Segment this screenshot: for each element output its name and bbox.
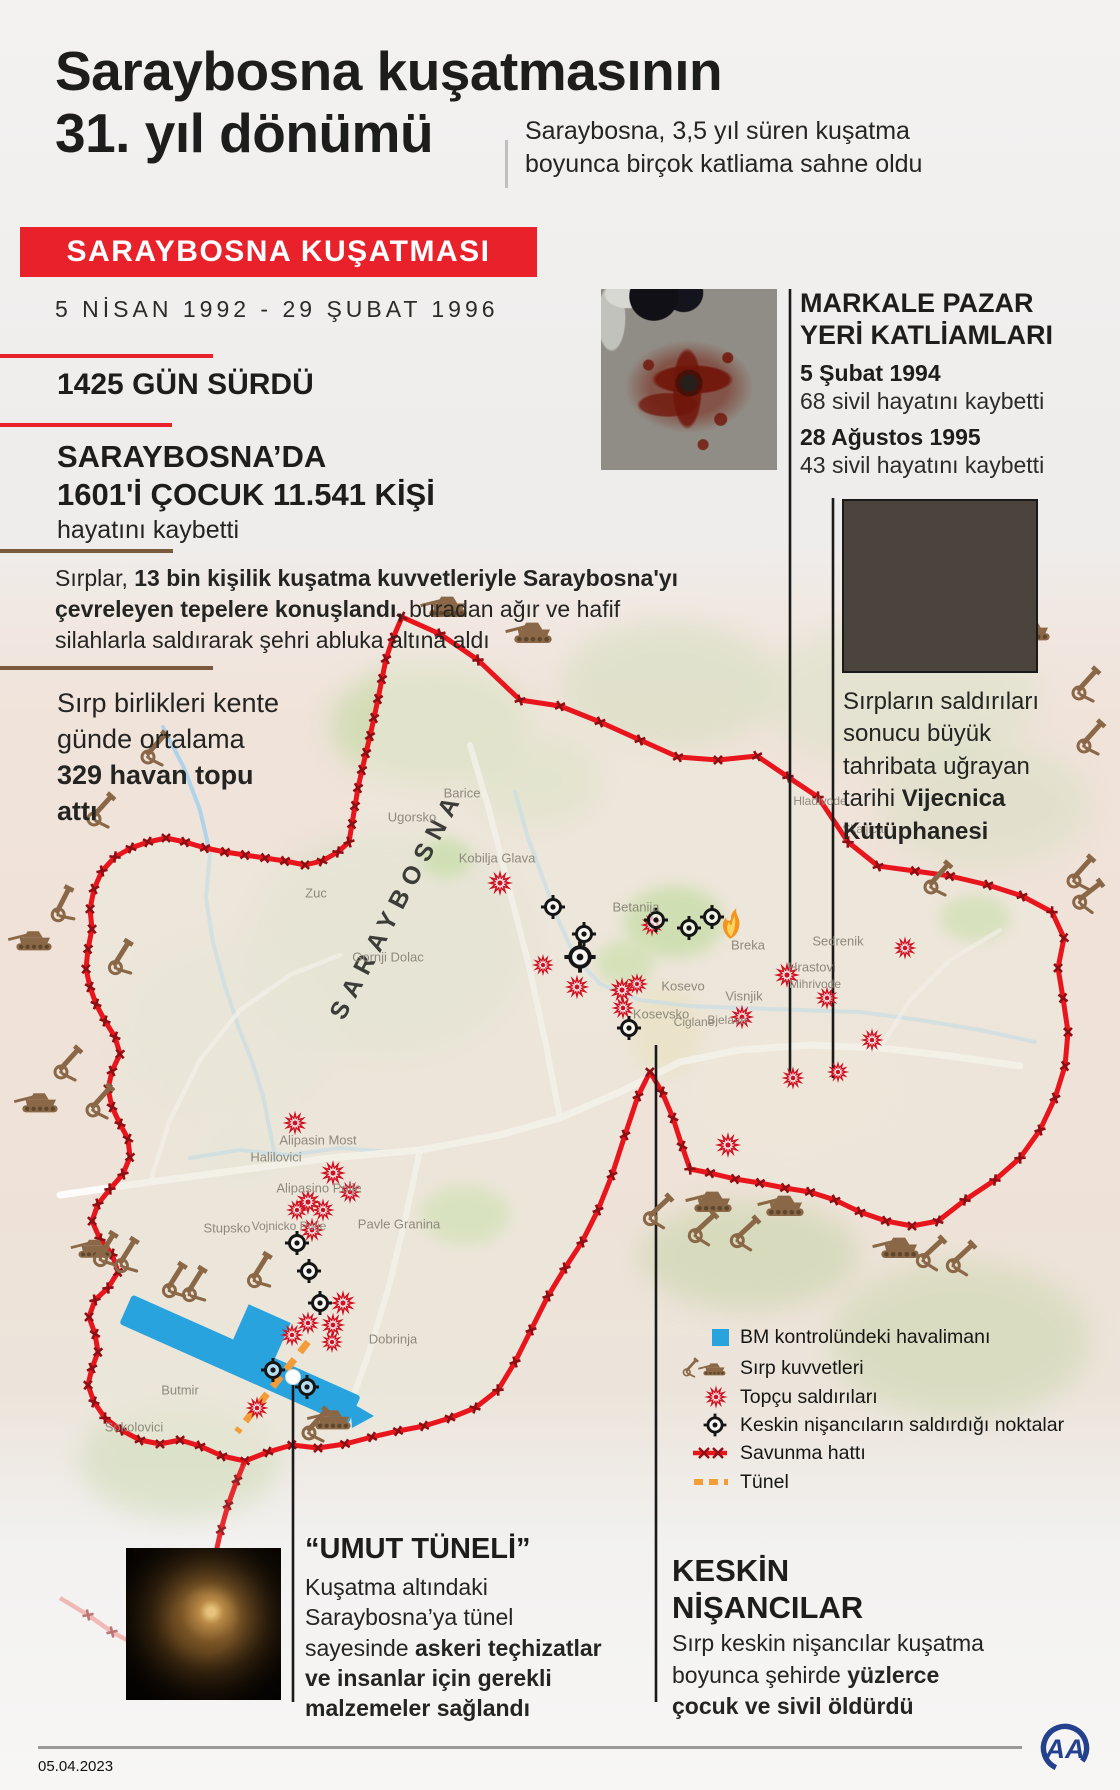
cannon-icon bbox=[947, 1238, 978, 1276]
legend-label: Savunma hattı bbox=[740, 1442, 866, 1465]
daily-shelling-bold: 329 havan topu attı bbox=[57, 760, 254, 826]
legend-label: BM kontrolündeki havalimanı bbox=[740, 1326, 990, 1349]
duration-stat: 1425 GÜN SÜRDÜ bbox=[57, 368, 314, 402]
cannon-icon bbox=[644, 1191, 675, 1229]
legend-label: Sırp kuvvetleri bbox=[740, 1357, 864, 1380]
divider-rule bbox=[0, 354, 213, 358]
markale-title-line1: MARKALE PAZAR bbox=[800, 288, 1053, 320]
sniper-section-body: Sırp keskin nişancılar kuşatma boyunca ş… bbox=[672, 1628, 1012, 1723]
map-place-label: Visnjik bbox=[725, 989, 762, 1004]
map-place-label: Halilovici bbox=[250, 1150, 301, 1165]
map-place-label: Vojnicko Polje bbox=[252, 1219, 327, 1233]
legend-row-snipers: Keskin nişancıların saldırdığı noktalar bbox=[678, 1410, 1064, 1440]
legend-label: Topçu saldırıları bbox=[740, 1386, 878, 1409]
tank-icon bbox=[14, 1093, 58, 1112]
markale-massacre-photo bbox=[601, 289, 777, 470]
cannon-icon bbox=[917, 1233, 948, 1271]
markale-event-toll: 43 sivil hayatını kaybetti bbox=[800, 452, 1044, 479]
cannon-icon bbox=[1072, 874, 1106, 914]
tunnel-midpoint-dot bbox=[286, 1370, 301, 1385]
legend-row-serb-forces: Sırp kuvvetleri bbox=[678, 1353, 864, 1383]
vijecnica-caption: Sırpların saldırıları sonucu büyük tahri… bbox=[843, 686, 1053, 848]
airport-square-icon bbox=[678, 1329, 740, 1346]
tank-icon bbox=[757, 1196, 803, 1216]
map-place-label: Kosevo bbox=[661, 979, 704, 994]
casualties-stat: SARAYBOSNA’DA 1601'İ ÇOCUK 11.541 KİŞİ bbox=[57, 438, 435, 514]
map-place-label: Butmir bbox=[161, 1383, 199, 1398]
footer-date: 05.04.2023 bbox=[38, 1758, 113, 1775]
subtitle-divider bbox=[505, 140, 508, 188]
legend-row-tunnel: Tünel bbox=[678, 1467, 789, 1497]
cannon-icon bbox=[55, 1044, 83, 1080]
tunnel-dash-icon bbox=[678, 1477, 740, 1487]
markale-title: MARKALE PAZAR YERİ KATLİAMLARI bbox=[800, 288, 1053, 352]
map-place-label: Ugorsko bbox=[388, 810, 436, 825]
map-place-label: Alipasin Most bbox=[279, 1133, 356, 1148]
divider-rule bbox=[0, 423, 172, 427]
map-place-label: Kobilja Glava bbox=[459, 851, 536, 866]
daily-shelling-stat: Sırp birlikleri kente günde ortalama 329… bbox=[57, 686, 287, 830]
legend-row-artillery: Topçu saldırıları bbox=[678, 1382, 878, 1412]
casualties-suffix: hayatını kaybetti bbox=[57, 514, 239, 548]
casualties-line1: SARAYBOSNA’DA bbox=[57, 438, 435, 476]
artillery-burst-icon bbox=[678, 1384, 740, 1410]
footer-divider bbox=[38, 1746, 1022, 1749]
map-place-label: Mihrivode bbox=[789, 977, 841, 991]
tank-icon bbox=[685, 1192, 731, 1212]
map-place-label: Hladivode bbox=[793, 794, 846, 808]
map-place-label: Betanija bbox=[613, 900, 660, 915]
divider-rule bbox=[0, 666, 213, 670]
defense-line-branch bbox=[216, 1461, 245, 1552]
sniper-title-line2: NİŞANCILAR bbox=[672, 1590, 863, 1627]
siege-date-range: 5 NİSAN 1992 - 29 ŞUBAT 1996 bbox=[55, 296, 499, 323]
map-place-label: Bjelave bbox=[707, 1013, 746, 1027]
divider-rule bbox=[0, 549, 173, 553]
paragraph-pre: Sırplar, bbox=[55, 565, 134, 591]
legend-row-airport: BM kontrolündeki havalimanı bbox=[678, 1322, 990, 1352]
sniper-crosshair-icon bbox=[678, 1411, 740, 1439]
cannon-icon bbox=[689, 1208, 720, 1246]
daily-shelling-pre: Sırp birlikleri kente günde ortalama bbox=[57, 688, 279, 754]
sniper-section-title: KESKİN NİŞANCILAR bbox=[672, 1553, 863, 1626]
map-place-label: Alipasino Polje bbox=[276, 1181, 361, 1196]
siege-banner: SARAYBOSNA KUŞATMASI bbox=[20, 227, 537, 277]
defense-line-icon bbox=[678, 1445, 740, 1461]
casualties-line2: 1601'İ ÇOCUK 11.541 KİŞİ bbox=[57, 476, 435, 514]
vijecnica-burning-photo bbox=[842, 499, 1038, 673]
cannon-icon bbox=[1073, 665, 1101, 701]
tunnel-section-body: Kuşatma altındaki Saraybosna’ya tünel sa… bbox=[305, 1572, 620, 1724]
logo-text: AA bbox=[1045, 1734, 1085, 1764]
siege-paragraph: Sırplar, 13 bin kişilik kuşatma kuvvetle… bbox=[55, 563, 705, 656]
tank-cannon-icon bbox=[678, 1357, 740, 1379]
defense-line-faded bbox=[60, 1598, 134, 1644]
cannon-icon bbox=[731, 1213, 762, 1251]
map-place-label: Barice bbox=[444, 786, 481, 801]
markale-event-date: 5 Şubat 1994 bbox=[800, 360, 941, 387]
legend-label: Tünel bbox=[740, 1471, 789, 1494]
map-place-label: Gornji Dolac bbox=[352, 950, 424, 965]
map-place-label: Pavle Granina bbox=[358, 1217, 440, 1232]
cannon-icon bbox=[1078, 718, 1106, 754]
tunnel-photo bbox=[126, 1548, 281, 1700]
map-place-label: Breka bbox=[731, 938, 765, 953]
map-place-label: Dobrinja bbox=[369, 1332, 417, 1347]
sniper-title-line1: KESKİN bbox=[672, 1553, 863, 1590]
map-place-label: Sokolovici bbox=[105, 1420, 164, 1435]
page-title-line1: Saraybosna kuşatmasının bbox=[55, 40, 722, 102]
legend-row-defense: Savunma hattı bbox=[678, 1438, 866, 1468]
legend-label: Keskin nişancıların saldırdığı noktalar bbox=[740, 1414, 1064, 1437]
markale-title-line2: YERİ KATLİAMLARI bbox=[800, 320, 1053, 352]
markale-event-toll: 68 sivil hayatını kaybetti bbox=[800, 388, 1044, 415]
page-subtitle: Saraybosna, 3,5 yıl süren kuşatma boyunc… bbox=[525, 115, 925, 181]
map-place-label: Sedrenik bbox=[812, 934, 863, 949]
cannon-icon bbox=[45, 882, 82, 924]
map-place-label: Stupsko bbox=[204, 1221, 251, 1236]
anadolu-agency-logo: AA bbox=[1038, 1720, 1092, 1776]
tunnel-section-title: “UMUT TÜNELİ” bbox=[305, 1533, 531, 1566]
markale-event-date: 28 Ağustos 1995 bbox=[800, 424, 981, 451]
map-place-label: Hrastovi bbox=[788, 960, 836, 975]
map-place-label: Zuc bbox=[305, 886, 327, 901]
tank-icon bbox=[8, 931, 52, 950]
tank-icon bbox=[872, 1238, 918, 1258]
cannon-icon bbox=[1068, 853, 1096, 889]
